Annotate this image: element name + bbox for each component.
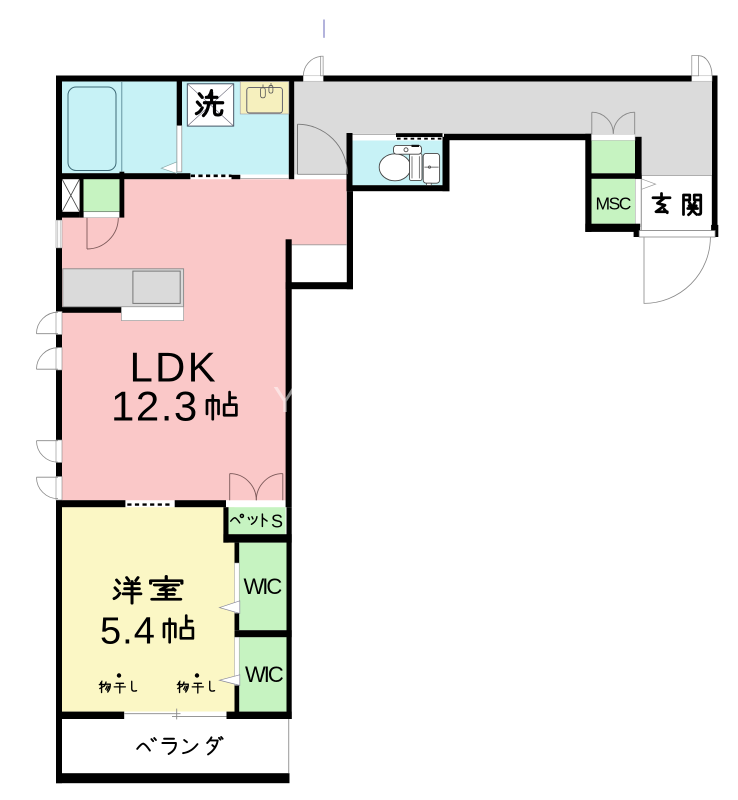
svg-text:5.4: 5.4 bbox=[100, 611, 156, 653]
svg-text:Y: Y bbox=[273, 379, 297, 420]
svg-text:WIC: WIC bbox=[245, 662, 284, 687]
svg-text:MSC: MSC bbox=[596, 194, 631, 214]
svg-text:S: S bbox=[271, 512, 283, 532]
svg-text:WIC: WIC bbox=[244, 574, 283, 599]
svg-text:12.3: 12.3 bbox=[111, 383, 199, 430]
